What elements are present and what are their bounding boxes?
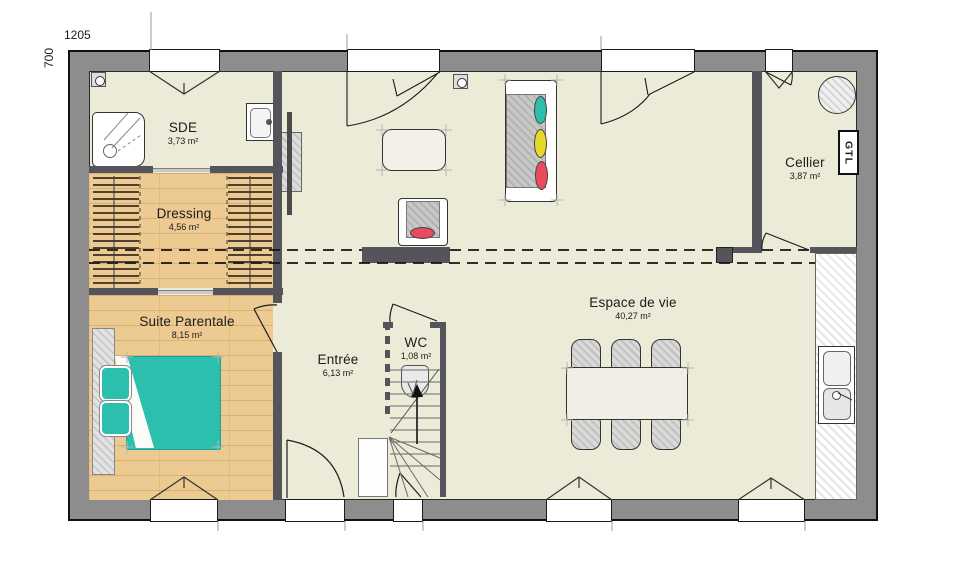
dimension-width-label: 1205 — [64, 28, 91, 42]
room-name: SDE — [168, 120, 199, 135]
wall-left-block — [273, 352, 282, 500]
wall-cellier-bottom — [733, 247, 752, 253]
shower-tray — [92, 112, 145, 167]
french-door-living — [601, 49, 695, 72]
wall-wc-left-partition — [385, 322, 390, 414]
window-stair — [393, 499, 423, 522]
sliding-door — [158, 290, 213, 294]
washbasin-tap-icon — [266, 119, 272, 125]
sofa-pillow-teal — [534, 96, 547, 124]
room-label-suite: Suite Parentale 8,15 m² — [139, 314, 234, 340]
armchair-pillow-red — [410, 227, 435, 239]
sofa — [505, 80, 557, 202]
wall-cellier — [752, 71, 762, 253]
room-area: 3,73 m² — [168, 136, 199, 146]
window-sde — [149, 49, 220, 72]
room-area: 4,56 m² — [157, 222, 212, 232]
smoke-detector-icon — [91, 72, 106, 87]
dining-chair — [611, 417, 641, 450]
room-area: 6,13 m² — [318, 368, 359, 378]
toilet — [401, 365, 429, 398]
gtl-box: GTL — [838, 130, 859, 175]
tv-screen — [287, 112, 292, 215]
wall-kitchen-top — [810, 247, 857, 253]
front-door — [285, 499, 345, 522]
wall-stair-right — [440, 322, 446, 497]
bed-pillow-top — [100, 366, 131, 401]
stair-lower-landing — [358, 438, 388, 497]
water-heater — [818, 76, 856, 114]
wall-post — [716, 247, 733, 263]
window-living-bottom-1 — [546, 499, 612, 522]
window-cellier — [765, 49, 793, 72]
wardrobe-left — [93, 177, 139, 287]
room-name: Entrée — [318, 352, 359, 367]
dimension-height-label: 700 — [42, 48, 56, 68]
kitchen-sink — [818, 346, 855, 424]
wall-left-block — [273, 71, 282, 303]
sliding-door — [153, 168, 210, 172]
sofa-pillow-yellow — [534, 129, 547, 158]
wall-wc-top — [430, 322, 446, 328]
sde-washbasin — [246, 103, 275, 141]
room-area: 3,87 m² — [785, 171, 825, 181]
room-name: Cellier — [785, 155, 825, 170]
floor-plan: 1205 700 — [0, 0, 960, 568]
room-label-wc: WC 1,08 m² — [401, 335, 432, 361]
room-name: Dressing — [157, 206, 212, 221]
window-living-bottom-2 — [738, 499, 805, 522]
room-label-entree: Entrée 6,13 m² — [318, 352, 359, 378]
window-living-top — [347, 49, 440, 72]
shower-drain-icon — [103, 144, 117, 158]
room-area: 40,27 m² — [589, 311, 676, 321]
room-area: 1,08 m² — [401, 351, 432, 361]
room-name: WC — [401, 335, 432, 350]
window-suite — [150, 499, 218, 522]
sofa-pillow-red — [535, 161, 548, 190]
wall-dressing-suite — [89, 288, 158, 295]
wall-sde-dressing — [89, 166, 153, 173]
room-name: Suite Parentale — [139, 314, 234, 329]
room-label-dressing: Dressing 4,56 m² — [157, 206, 212, 232]
dining-table — [566, 367, 688, 420]
dining-chair — [571, 417, 601, 450]
coffee-table — [382, 129, 446, 171]
room-label-cellier: Cellier 3,87 m² — [785, 155, 825, 181]
room-area: 8,15 m² — [139, 330, 234, 340]
wall-above-stairs — [362, 247, 450, 263]
smoke-detector-icon — [453, 74, 468, 89]
wardrobe-right — [228, 177, 272, 287]
sink-drainer — [823, 351, 851, 386]
dining-chair — [651, 417, 681, 450]
sink-tap-icon — [832, 391, 841, 400]
room-label-espace: Espace de vie 40,27 m² — [589, 295, 676, 321]
bed-pillow-bottom — [100, 401, 131, 436]
detector-circle — [457, 78, 467, 88]
detector-circle — [95, 76, 105, 86]
armchair — [398, 198, 448, 246]
room-label-sde: SDE 3,73 m² — [168, 120, 199, 146]
gtl-label: GTL — [843, 141, 855, 165]
room-name: Espace de vie — [589, 295, 676, 310]
